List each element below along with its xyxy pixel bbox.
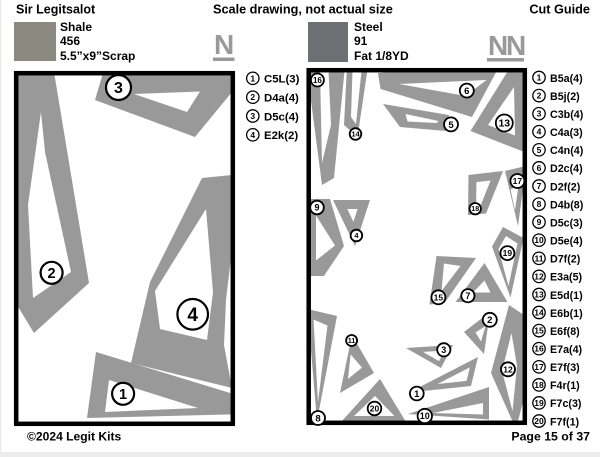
svg-text:11: 11	[535, 253, 544, 263]
svg-text:F4r(1): F4r(1)	[550, 380, 580, 392]
svg-text:E6b(1): E6b(1)	[550, 308, 583, 320]
svg-text:C4a(3): C4a(3)	[550, 127, 583, 139]
svg-text:19: 19	[534, 398, 544, 408]
svg-text:Sir Legitsalot: Sir Legitsalot	[16, 3, 96, 17]
svg-text:D5e(4): D5e(4)	[550, 236, 583, 248]
svg-text:©2024 Legit Kits: ©2024 Legit Kits	[27, 430, 122, 444]
svg-text:C3b(4): C3b(4)	[550, 109, 584, 121]
svg-text:E7a(4): E7a(4)	[550, 344, 583, 356]
svg-text:5: 5	[537, 145, 542, 155]
svg-text:17: 17	[513, 176, 523, 186]
svg-text:D2c(4): D2c(4)	[550, 163, 583, 175]
svg-text:Fat 1/8YD: Fat 1/8YD	[354, 49, 409, 63]
svg-text:D2f(2): D2f(2)	[550, 181, 581, 193]
svg-text:7: 7	[465, 291, 470, 301]
svg-text:E7f(3): E7f(3)	[550, 362, 580, 374]
svg-text:D5c(4): D5c(4)	[264, 111, 299, 123]
svg-text:2: 2	[48, 266, 56, 282]
svg-text:456: 456	[60, 34, 80, 48]
svg-text:20: 20	[534, 416, 544, 426]
svg-text:5.5”x9”Scrap: 5.5”x9”Scrap	[60, 49, 135, 63]
svg-text:6: 6	[464, 86, 469, 97]
svg-text:4: 4	[537, 127, 542, 137]
svg-text:10: 10	[420, 411, 430, 421]
svg-text:E6f(8): E6f(8)	[550, 326, 580, 338]
svg-text:17: 17	[534, 362, 544, 372]
svg-text:20: 20	[370, 404, 380, 414]
svg-text:F7f(1): F7f(1)	[550, 416, 580, 428]
svg-text:15: 15	[434, 292, 444, 302]
svg-text:12: 12	[534, 271, 544, 281]
svg-text:E2k(2): E2k(2)	[264, 130, 298, 142]
svg-text:5: 5	[448, 120, 454, 131]
svg-text:3: 3	[441, 345, 446, 355]
svg-text:D5c(3): D5c(3)	[550, 217, 583, 229]
svg-text:2: 2	[487, 315, 492, 326]
svg-text:11: 11	[348, 338, 356, 345]
svg-text:D4b(8): D4b(8)	[550, 199, 584, 211]
svg-text:F7c(3): F7c(3)	[550, 398, 582, 410]
svg-text:14: 14	[351, 130, 360, 139]
svg-text:4: 4	[250, 130, 255, 140]
svg-text:16: 16	[534, 344, 544, 354]
svg-text:1: 1	[250, 73, 255, 83]
svg-text:18: 18	[471, 206, 479, 213]
svg-text:4: 4	[187, 305, 198, 326]
svg-text:91: 91	[354, 34, 368, 48]
svg-text:N: N	[214, 29, 234, 60]
svg-text:1: 1	[119, 387, 127, 403]
svg-text:8: 8	[315, 413, 320, 424]
svg-text:D4a(4): D4a(4)	[264, 93, 299, 105]
svg-text:2: 2	[537, 91, 542, 101]
svg-text:Steel: Steel	[354, 20, 383, 34]
svg-text:3: 3	[250, 111, 255, 121]
svg-text:14: 14	[534, 308, 544, 318]
svg-text:B5j(2): B5j(2)	[550, 91, 580, 103]
svg-text:13: 13	[534, 290, 544, 300]
svg-text:E5d(1): E5d(1)	[550, 290, 583, 302]
svg-text:12: 12	[503, 364, 513, 374]
svg-text:D7f(2): D7f(2)	[550, 254, 581, 266]
svg-text:C5L(3): C5L(3)	[264, 74, 300, 86]
svg-text:3: 3	[537, 109, 542, 119]
svg-text:B5a(4): B5a(4)	[550, 73, 583, 85]
svg-text:13: 13	[498, 118, 510, 130]
svg-text:3: 3	[114, 80, 123, 97]
svg-text:6: 6	[537, 163, 542, 173]
svg-text:Shale: Shale	[60, 20, 92, 34]
svg-text:9: 9	[537, 217, 542, 227]
svg-text:1: 1	[537, 73, 542, 83]
svg-text:NN: NN	[488, 30, 525, 61]
svg-text:8: 8	[537, 199, 542, 209]
svg-text:16: 16	[313, 76, 322, 85]
svg-text:E3a(5): E3a(5)	[550, 272, 583, 284]
svg-text:10: 10	[534, 235, 544, 245]
svg-text:Page 15 of 37: Page 15 of 37	[511, 430, 590, 444]
svg-text:18: 18	[534, 380, 544, 390]
svg-text:9: 9	[314, 203, 319, 213]
svg-text:15: 15	[534, 326, 544, 336]
svg-text:7: 7	[537, 181, 542, 191]
svg-text:1: 1	[414, 389, 420, 400]
svg-text:Cut Guide: Cut Guide	[529, 3, 590, 17]
svg-text:19: 19	[503, 248, 513, 258]
svg-text:C4n(4): C4n(4)	[550, 145, 584, 157]
svg-text:2: 2	[250, 92, 255, 102]
svg-text:Scale drawing, not actual size: Scale drawing, not actual size	[213, 3, 393, 17]
